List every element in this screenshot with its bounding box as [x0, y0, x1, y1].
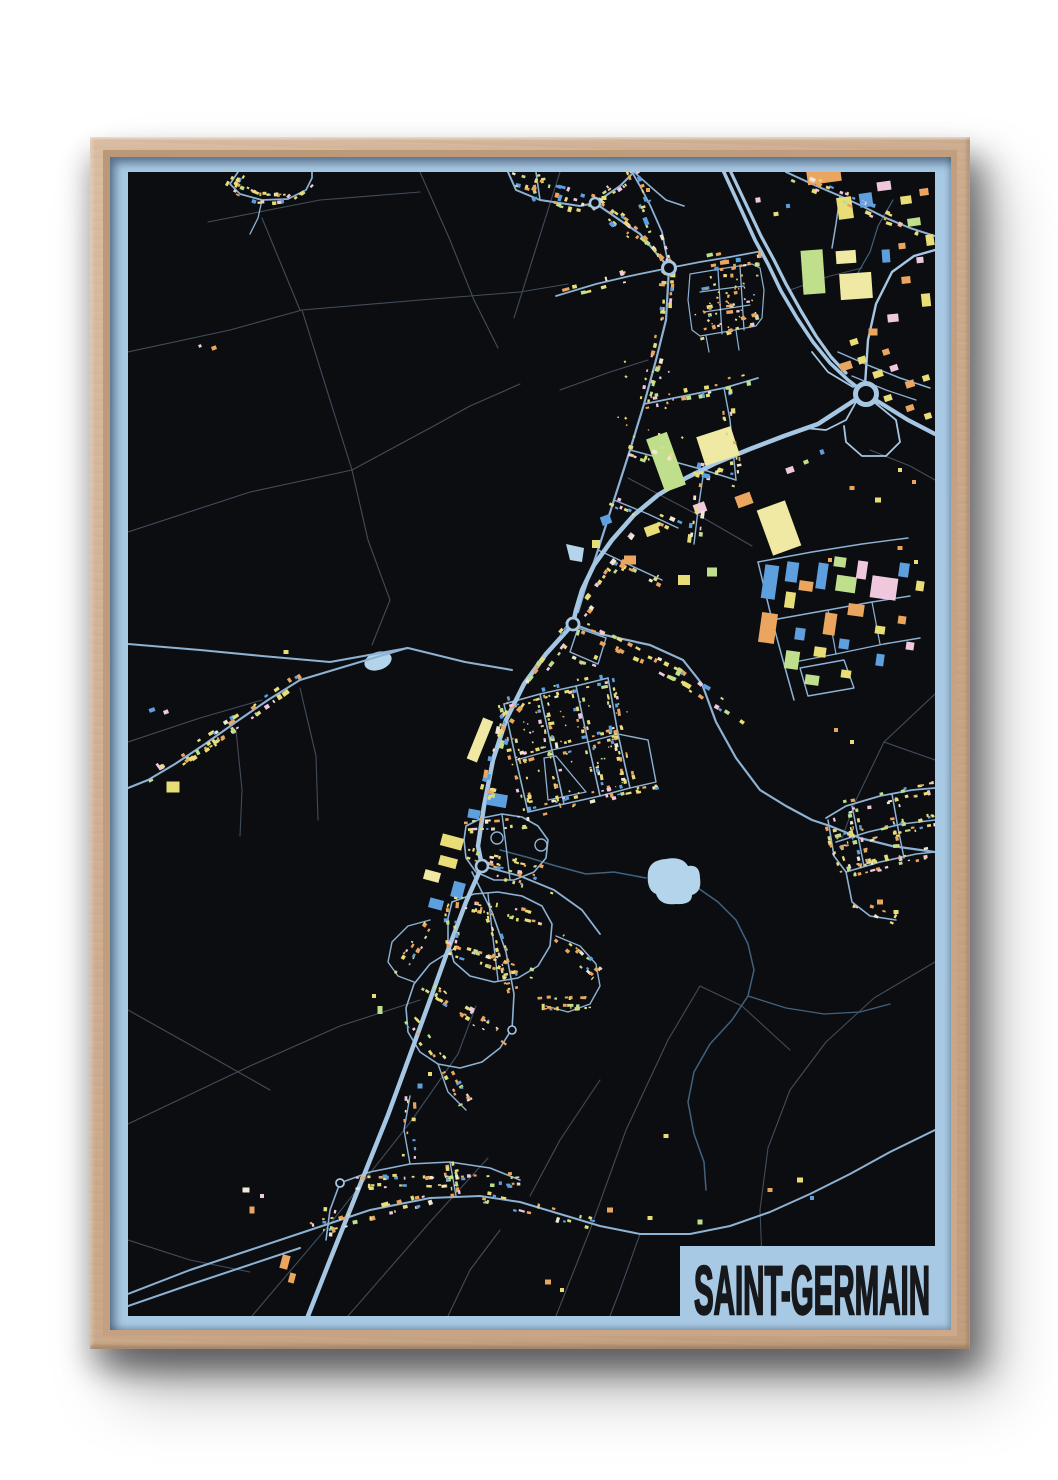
svg-text:SAINT-GERMAIN: SAINT-GERMAIN	[694, 1252, 929, 1316]
